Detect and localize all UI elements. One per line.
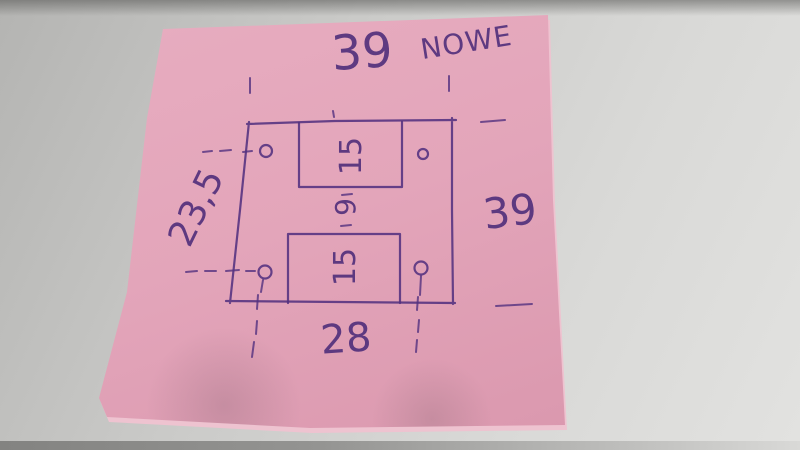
hole-top-left [260,145,272,157]
dim-top-width-label: 39 [330,22,395,82]
hole-bottom-right-tail [420,276,421,295]
hole-bottom-left-tail [261,280,263,292]
dim-top-slot-label: 15 [334,137,369,175]
hole-bottom-right [415,262,428,275]
hole-bottom-left [259,266,272,279]
note-heading-label: NOWE [418,19,514,66]
dim-right-height-label: 39 [480,184,539,239]
dim-bottom-slot-label: 15 [328,248,363,286]
hole-top-right [418,149,428,159]
dim-left-height-label: 23,5 [161,163,233,253]
photo-background: 39 NOWE 23,5 39 28 15 9 15 [0,0,800,450]
dim-center-gap-label: 9 [329,198,362,216]
dim-bottom-width-label: 28 [319,314,373,363]
hand-drawn-sketch: 39 NOWE 23,5 39 28 15 9 15 [0,0,800,450]
